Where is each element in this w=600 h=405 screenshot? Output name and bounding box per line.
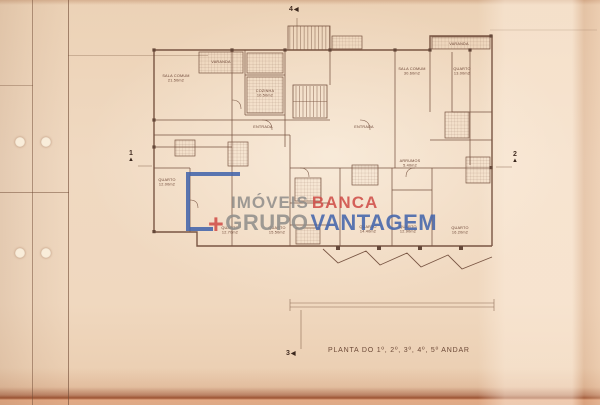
section-marker-number: 4	[289, 6, 293, 13]
room-label: VARANDA	[211, 60, 231, 64]
room-label: ENTRADA	[354, 125, 374, 129]
floor-plan-svg: SALA COMUM21.50m2VARANDACOZINHA10.50m2SA…	[0, 0, 600, 405]
room-label: VARANDA	[449, 42, 469, 46]
room-label: SALA COMUM30.60m2	[398, 67, 425, 76]
section-marker-1: 1▲	[128, 150, 134, 163]
section-marker-4: 4◀	[289, 6, 299, 13]
room-label: QUARTO13.00m2	[453, 67, 470, 76]
section-marker-triangle-icon: ◀	[291, 351, 296, 357]
room-label: QUARTO14.40m2	[359, 225, 376, 234]
room-label: ENTRADA	[253, 125, 273, 129]
room-label: QUARTO12.00m2	[158, 178, 175, 187]
section-marker-number: 1	[129, 150, 133, 157]
room-label: SALA COMUM21.50m2	[162, 74, 189, 83]
room-label: QUARTO12.70m2	[221, 226, 238, 235]
plan-walls	[152, 26, 492, 269]
section-marker-number: 3	[286, 350, 290, 357]
scanned-blueprint-page: SALA COMUM21.50m2VARANDACOZINHA10.50m2SA…	[0, 0, 600, 405]
section-marker-triangle-icon: ◀	[294, 7, 299, 13]
section-marker-triangle-icon: ▲	[512, 158, 518, 164]
plan-caption: PLANTA DO 1º, 2º, 3º, 4º, 5º ANDAR	[328, 347, 470, 354]
room-label: QUARTO16.20m2	[451, 226, 468, 235]
room-label: QUARTO15.50m2	[268, 226, 285, 235]
section-marker-2: 2▲	[512, 151, 518, 164]
room-label: ARRUMOS5.40m2	[400, 159, 421, 168]
section-marker-triangle-icon: ▲	[128, 157, 134, 163]
section-marker-number: 2	[513, 151, 517, 158]
section-marker-3: 3◀	[286, 350, 296, 357]
room-label: QUARTO12.90m2	[399, 225, 416, 234]
room-label: COZINHA10.50m2	[256, 89, 275, 98]
